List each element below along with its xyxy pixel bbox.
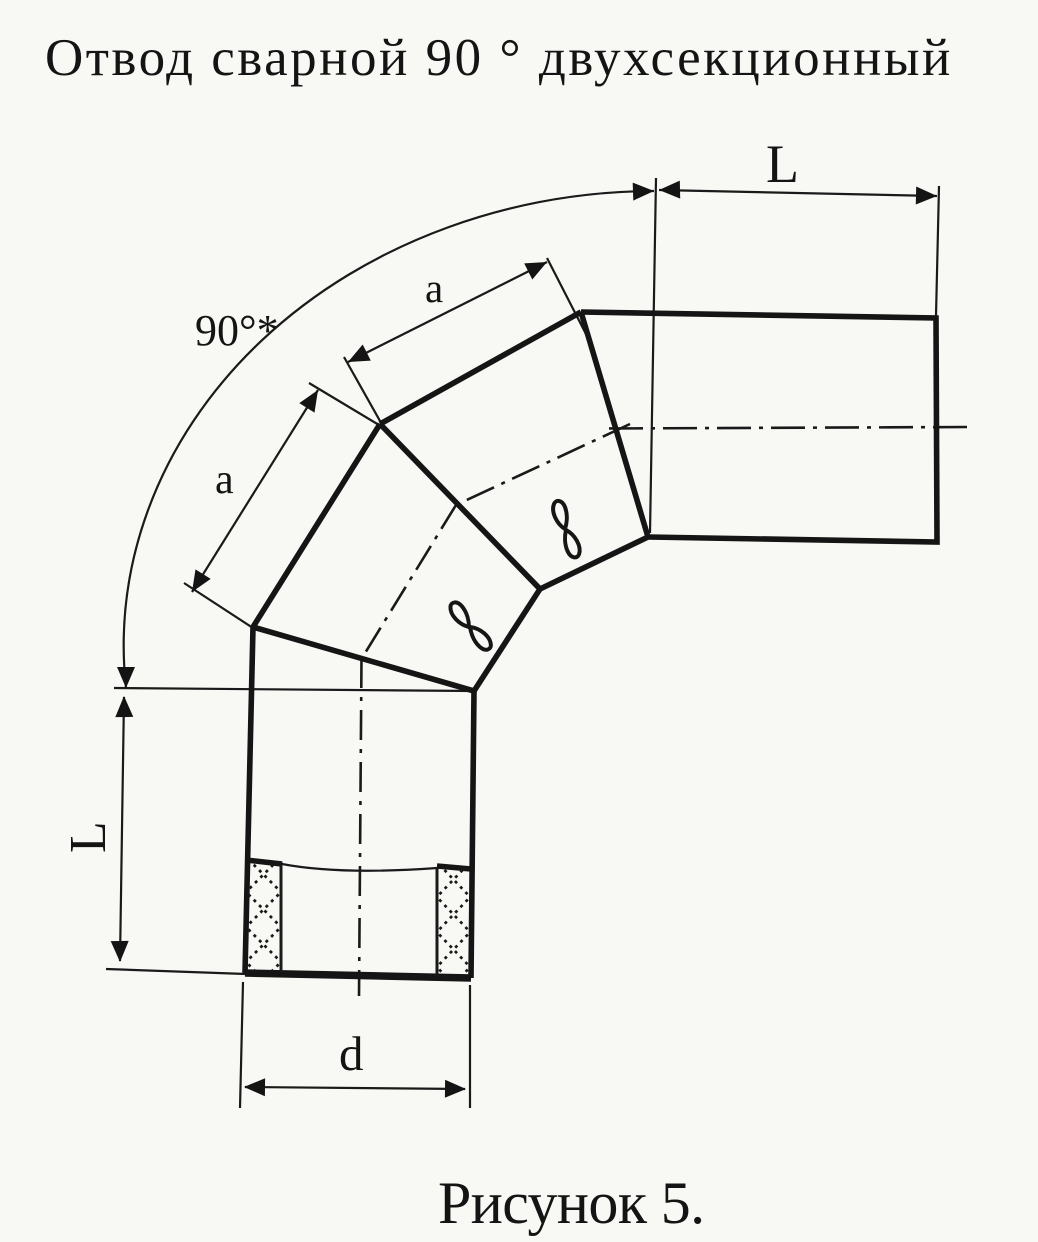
svg-text:a: a	[425, 265, 443, 311]
svg-text:Рисунок 5.: Рисунок 5.	[438, 1170, 705, 1236]
svg-text:d: d	[339, 1026, 364, 1081]
svg-text:L: L	[766, 134, 799, 194]
svg-text:90°*: 90°*	[195, 306, 279, 355]
svg-text:a: a	[215, 457, 234, 503]
svg-text:L: L	[60, 821, 117, 853]
svg-text:Отвод сварной 90 ° двухсекцион: Отвод сварной 90 ° двухсекционный	[45, 29, 953, 87]
